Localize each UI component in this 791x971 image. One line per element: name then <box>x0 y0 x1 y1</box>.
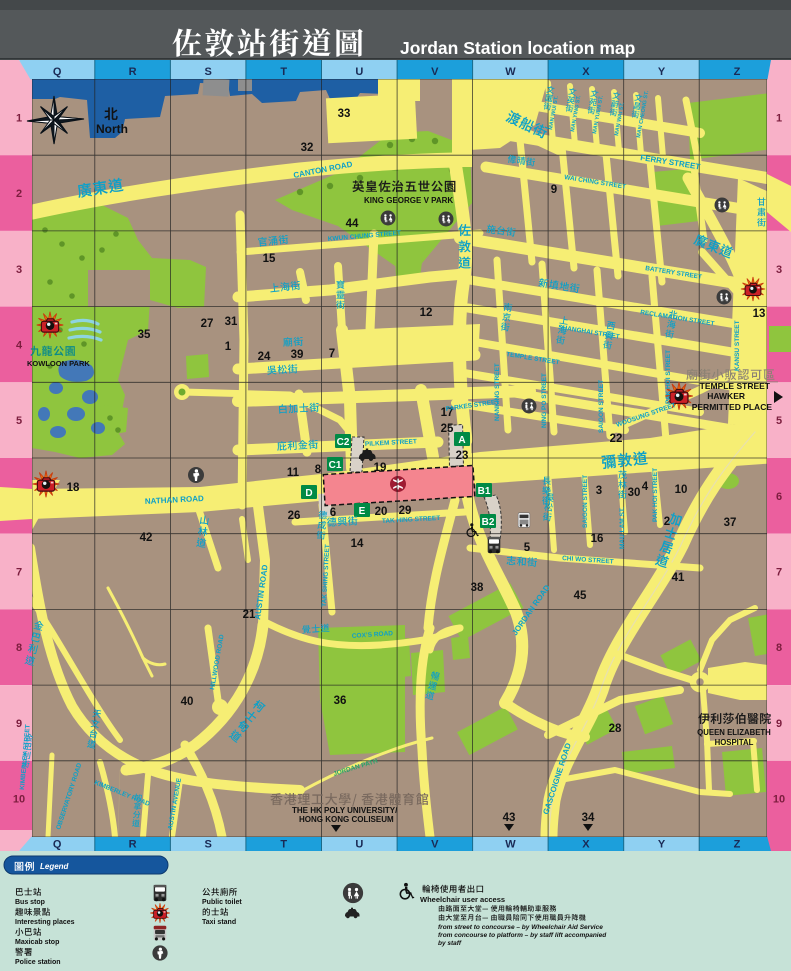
svg-text:43: 43 <box>503 812 516 824</box>
svg-text:42: 42 <box>140 532 153 544</box>
svg-text:R: R <box>129 839 137 851</box>
svg-text:W: W <box>505 839 516 851</box>
svg-text:U: U <box>355 66 363 78</box>
svg-text:9: 9 <box>16 718 22 730</box>
svg-text:9: 9 <box>551 184 557 196</box>
svg-text:10: 10 <box>13 794 25 806</box>
svg-text:V: V <box>431 66 439 78</box>
svg-text:Police station: Police station <box>15 959 61 966</box>
svg-text:30: 30 <box>628 487 641 499</box>
svg-text:41: 41 <box>672 572 685 584</box>
svg-text:45: 45 <box>574 590 587 602</box>
svg-text:Maxicab stop: Maxicab stop <box>15 939 59 946</box>
svg-text:S: S <box>205 66 212 78</box>
svg-text:3: 3 <box>16 264 22 276</box>
svg-text:Taxi stand: Taxi stand <box>202 919 236 926</box>
svg-text:Legend: Legend <box>40 862 70 871</box>
svg-text:32: 32 <box>301 142 314 154</box>
svg-text:35: 35 <box>138 329 151 341</box>
svg-text:North: North <box>96 122 128 136</box>
svg-text:8: 8 <box>315 464 322 476</box>
svg-text:5: 5 <box>16 415 22 427</box>
svg-text:KOWLOON PARK: KOWLOON PARK <box>27 359 90 368</box>
svg-text:1: 1 <box>225 341 232 353</box>
svg-text:37: 37 <box>724 517 737 529</box>
svg-text:HOSPITAL: HOSPITAL <box>715 738 754 747</box>
svg-text:from street to concourse – by: from street to concourse – by Wheelchair… <box>438 924 603 931</box>
svg-text:44: 44 <box>346 218 359 230</box>
svg-text:QUEEN ELIZABETH: QUEEN ELIZABETH <box>697 728 771 737</box>
svg-text:KANSU STREET: KANSU STREET <box>734 320 741 371</box>
svg-text:27: 27 <box>201 318 214 330</box>
svg-text:10: 10 <box>675 484 688 496</box>
svg-text:28: 28 <box>609 723 622 735</box>
svg-text:W: W <box>505 66 516 78</box>
svg-text:33: 33 <box>338 108 351 120</box>
svg-text:5: 5 <box>776 415 782 427</box>
svg-text:Interesting places: Interesting places <box>15 919 75 926</box>
svg-text:34: 34 <box>582 812 595 824</box>
svg-text:9: 9 <box>776 718 782 730</box>
svg-text:PAK HOI STREET: PAK HOI STREET <box>665 350 672 404</box>
svg-text:24: 24 <box>258 351 271 363</box>
svg-text:26: 26 <box>288 510 301 522</box>
svg-text:7: 7 <box>776 567 782 579</box>
svg-text:A: A <box>458 435 465 446</box>
svg-text:18: 18 <box>67 482 80 494</box>
svg-text:12: 12 <box>420 307 433 319</box>
svg-text:Z: Z <box>734 66 741 78</box>
svg-text:Q: Q <box>53 66 62 78</box>
svg-text:10: 10 <box>773 794 785 806</box>
svg-text:V: V <box>431 839 439 851</box>
svg-text:X: X <box>582 66 590 78</box>
svg-text:Y: Y <box>658 839 666 851</box>
svg-text:1: 1 <box>16 112 22 124</box>
svg-text:29: 29 <box>399 505 412 517</box>
svg-text:X: X <box>582 839 590 851</box>
svg-text:Bus stop: Bus stop <box>15 899 45 906</box>
svg-text:C2: C2 <box>337 437 350 448</box>
svg-text:22: 22 <box>610 433 623 445</box>
svg-text:15: 15 <box>263 253 276 265</box>
svg-text:R: R <box>129 66 137 78</box>
svg-text:NING PO STREET: NING PO STREET <box>541 373 548 428</box>
svg-text:Q: Q <box>53 839 62 851</box>
svg-text:7: 7 <box>329 348 335 360</box>
svg-text:3: 3 <box>596 485 602 497</box>
svg-text:HONG KONG COLISEUM: HONG KONG COLISEUM <box>299 815 394 824</box>
svg-text:KING GEORGE V PARK: KING GEORGE V PARK <box>364 196 453 205</box>
svg-text:5: 5 <box>524 542 531 554</box>
svg-text:SAIGON STREET: SAIGON STREET <box>582 475 589 528</box>
svg-text:2: 2 <box>16 188 22 200</box>
svg-text:T: T <box>280 839 287 851</box>
svg-text:6: 6 <box>776 491 782 503</box>
svg-text:T: T <box>280 66 287 78</box>
svg-text:25: 25 <box>441 423 454 435</box>
svg-text:U: U <box>355 839 363 851</box>
svg-text:TEMPLE STREET: TEMPLE STREET <box>700 381 771 391</box>
svg-text:THE HK POLY UNIVERSITY/: THE HK POLY UNIVERSITY/ <box>292 806 398 815</box>
svg-text:11: 11 <box>287 467 300 479</box>
svg-text:MAU LAM ST.: MAU LAM ST. <box>619 507 626 549</box>
svg-text:4: 4 <box>642 481 649 493</box>
svg-text:31: 31 <box>225 316 238 328</box>
svg-text:Public toilet: Public toilet <box>202 899 242 906</box>
svg-text:7: 7 <box>16 567 22 579</box>
svg-text:8: 8 <box>776 642 782 654</box>
svg-text:38: 38 <box>471 582 484 594</box>
svg-text:13: 13 <box>753 308 766 320</box>
svg-text:by staff: by staff <box>438 940 462 947</box>
svg-text:19: 19 <box>374 462 387 474</box>
svg-text:20: 20 <box>375 506 388 518</box>
svg-text:B1: B1 <box>478 486 491 497</box>
svg-text:8: 8 <box>16 642 22 654</box>
svg-text:PERMITTED PLACE: PERMITTED PLACE <box>692 402 773 412</box>
svg-text:Y: Y <box>658 66 666 78</box>
svg-text:NANKING STREET: NANKING STREET <box>494 363 501 421</box>
svg-text:23: 23 <box>456 450 469 462</box>
svg-text:from concourse to platform – b: from concourse to platform – by staff li… <box>438 932 607 939</box>
svg-text:D: D <box>305 488 312 499</box>
svg-text:1: 1 <box>776 112 782 124</box>
svg-text:SAIGON STREET: SAIGON STREET <box>598 380 605 433</box>
svg-text:HAWKER: HAWKER <box>707 391 745 401</box>
svg-text:14: 14 <box>351 538 364 550</box>
svg-text:4: 4 <box>16 339 23 351</box>
svg-text:B2: B2 <box>482 517 495 528</box>
svg-text:Jordan Station location map: Jordan Station location map <box>400 38 635 58</box>
svg-text:36: 36 <box>334 695 347 707</box>
svg-text:16: 16 <box>591 533 604 545</box>
svg-text:S: S <box>205 839 212 851</box>
svg-text:Z: Z <box>734 839 741 851</box>
svg-text:E: E <box>359 506 366 517</box>
svg-text:Wheelchair user access: Wheelchair user access <box>420 895 505 904</box>
svg-text:3: 3 <box>776 264 782 276</box>
svg-text:40: 40 <box>181 696 194 708</box>
svg-text:C1: C1 <box>329 460 342 471</box>
svg-text:PAK HOI STREET: PAK HOI STREET <box>652 468 659 522</box>
svg-text:39: 39 <box>291 349 304 361</box>
